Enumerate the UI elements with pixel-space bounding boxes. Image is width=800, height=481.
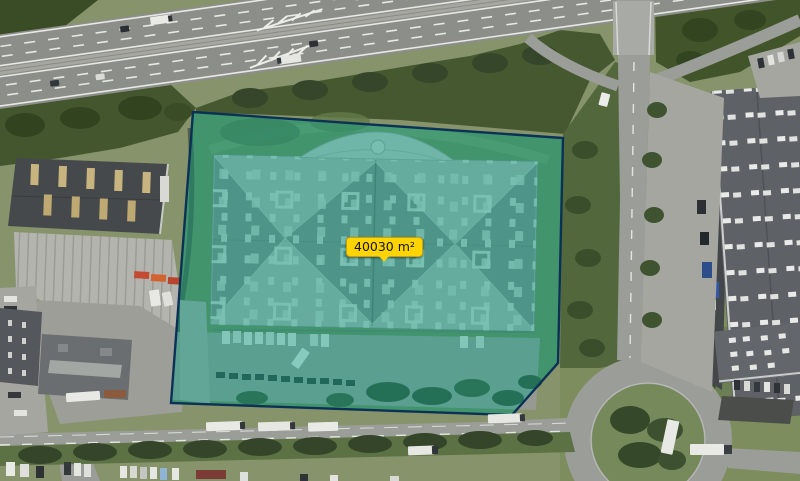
measurement-area-text: 40030 m² bbox=[354, 239, 415, 254]
southeast-building bbox=[714, 320, 800, 424]
measurement-area-label[interactable]: 40030 m² bbox=[346, 237, 423, 257]
measurement-polygon[interactable] bbox=[171, 112, 563, 415]
map-canvas[interactable]: 40030 m² bbox=[0, 0, 800, 481]
west-building-1 bbox=[8, 158, 169, 234]
label-pointer bbox=[379, 256, 389, 262]
east-parking-strip bbox=[640, 72, 724, 392]
